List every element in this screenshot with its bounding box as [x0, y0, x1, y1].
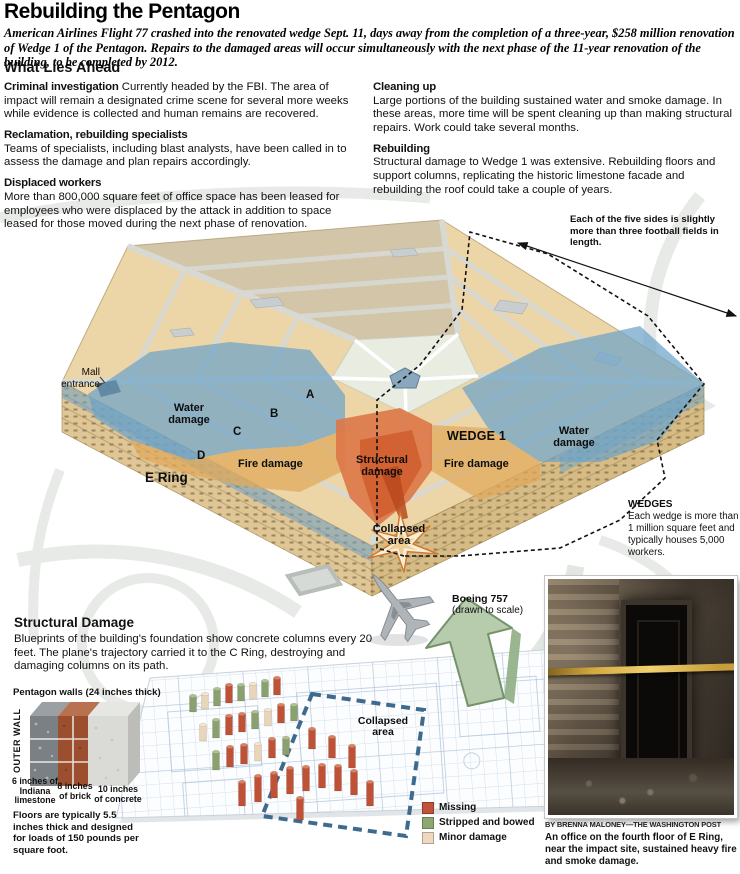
label-e-ring: E Ring	[145, 471, 188, 486]
label-water-damage-right: Water damage	[542, 426, 606, 450]
label-structural-damage: Structural damage	[344, 455, 420, 479]
section-heading-what-lies-ahead: What Lies Ahead	[4, 60, 120, 76]
legend-row-missing: Missing	[422, 800, 535, 815]
label-mall-entrance: Mall entrance	[42, 367, 100, 390]
photo-office-fire-damage	[545, 576, 737, 818]
legend-row-stripped: Stripped and bowed	[422, 815, 535, 830]
label-ring-c: C	[233, 426, 241, 438]
item-cleaning-up: Cleaning upLarge portions of the buildin…	[373, 81, 735, 136]
layer-limestone-label: 6 inches of Indiana limestone	[8, 777, 62, 806]
boeing-757-label: Boeing 757 (drawn to scale)	[452, 594, 523, 616]
section-heading-structural-damage: Structural Damage	[14, 615, 134, 630]
minor-damage-swatch	[422, 832, 434, 844]
photo-caption: An office on the fourth floor of E Ring,…	[545, 832, 737, 868]
label-fire-damage-left: Fire damage	[238, 459, 303, 471]
what-lies-ahead-right-column: Cleaning upLarge portions of the buildin…	[373, 81, 735, 205]
floors-note: Floors are typically 5.5 inches thick an…	[13, 810, 143, 856]
label-collapsed-area-blueprint: Collapsed area	[350, 716, 416, 739]
layer-concrete-label: 10 inches of concrete	[94, 785, 142, 804]
label-water-damage-left: Water damage	[158, 403, 220, 427]
wedges-note: WEDGES Each wedge is more than 1 million…	[628, 500, 740, 559]
label-ring-a: A	[306, 389, 314, 401]
item-reclamation-specialists: Reclamation, rebuilding specialistsTeams…	[4, 129, 361, 170]
wedges-note-title: WEDGES	[628, 500, 740, 511]
label-wedge1: WEDGE 1	[447, 430, 506, 444]
infographic-rebuilding-pentagon: H	[0, 0, 740, 874]
label-fire-damage-right: Fire damage	[444, 459, 509, 471]
label-ring-d: D	[197, 450, 205, 462]
item-criminal-investigation: Criminal investigation Currently headed …	[4, 81, 361, 122]
item-displaced-workers: Displaced workersMore than 800,000 squar…	[4, 177, 361, 232]
label-collapsed-area-building: Collapsed area	[364, 524, 434, 548]
photo-debris-floor	[548, 758, 734, 815]
svg-text:H: H	[198, 575, 212, 592]
stripped-swatch	[422, 817, 434, 829]
legend-row-minor: Minor damage	[422, 830, 535, 845]
photo-credit: BY BRENNA MALONEY—THE WASHINGTON POST	[545, 820, 738, 829]
damage-legend: Missing Stripped and bowed Minor damage	[422, 800, 535, 845]
sides-note: Each of the five sides is slightly more …	[570, 214, 740, 249]
page-title: Rebuilding the Pentagon	[4, 0, 240, 24]
item-rebuilding: RebuildingStructural damage to Wedge 1 w…	[373, 143, 735, 198]
what-lies-ahead-left-column: Criminal investigation Currently headed …	[4, 81, 361, 239]
photo-door-panel	[637, 620, 680, 767]
pentagon-walls-heading: Pentagon walls (24 inches thick)	[13, 687, 161, 698]
label-ring-b: B	[270, 408, 278, 420]
missing-swatch	[422, 802, 434, 814]
layer-brick-label: 8 inches of brick	[55, 782, 95, 801]
wall-block	[30, 702, 140, 786]
outer-wall-label: OUTER WALL	[12, 702, 24, 780]
structural-damage-text: Blueprints of the building's foundation …	[14, 633, 376, 674]
